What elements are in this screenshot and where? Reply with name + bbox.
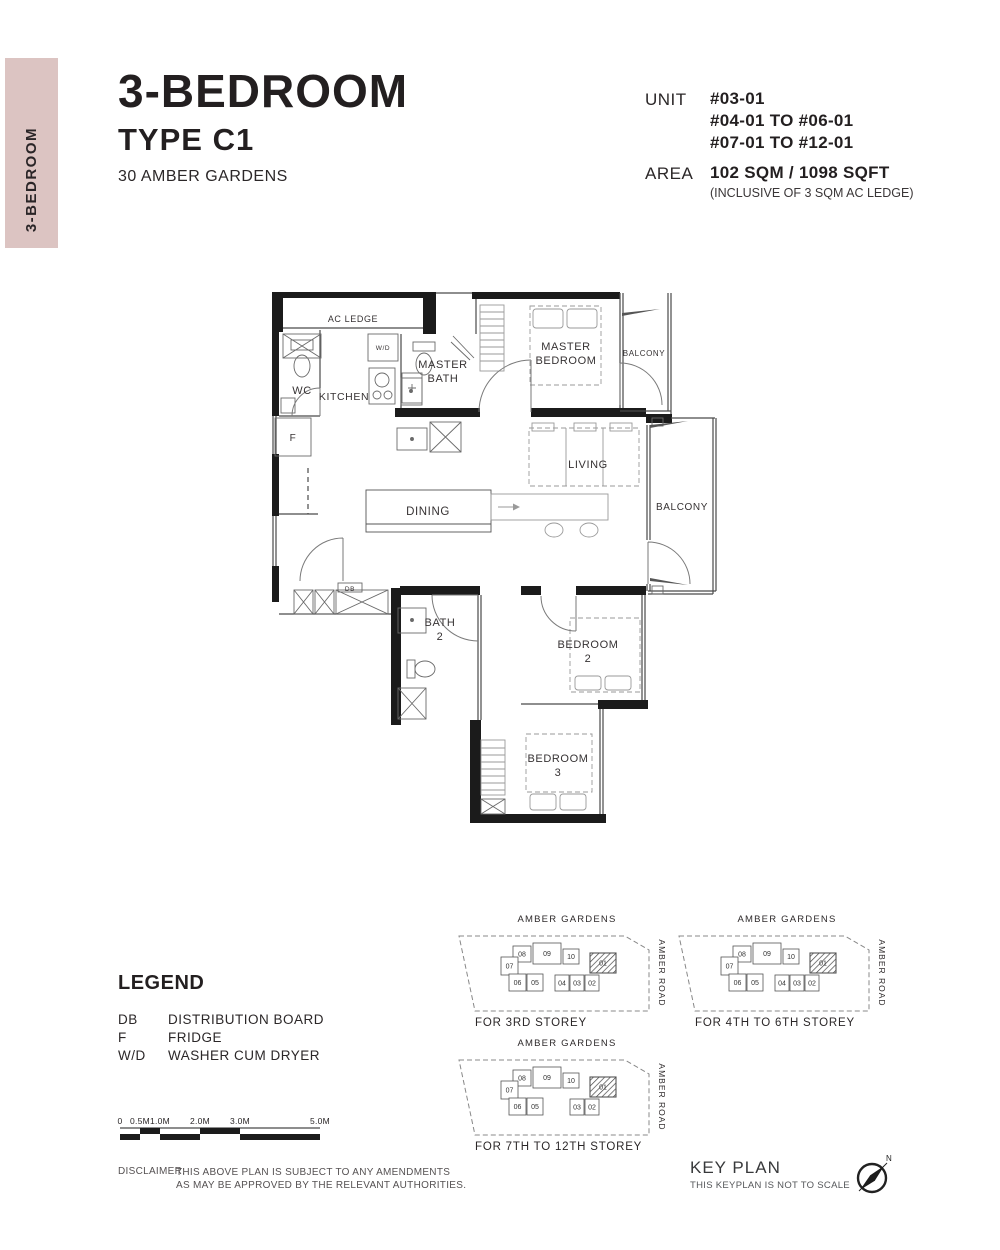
unit-values: #03-01#04-01 TO #06-01#07-01 TO #12-01: [710, 88, 853, 154]
unit-number-04: 04: [778, 981, 786, 988]
key-plan-caption: FOR 7TH TO 12TH STOREY: [475, 1141, 642, 1153]
key-plan-2: AMBER GARDENSAMBER ROAD08091007010605040…: [675, 910, 905, 1040]
legend-abbr: DB: [118, 1012, 168, 1027]
room-label-bath-2: BATH2: [425, 617, 456, 643]
legend-item-f: FFRIDGE: [118, 1030, 324, 1045]
room-label-balcony-top: BALCONY: [623, 349, 665, 358]
scale-segment: [140, 1128, 160, 1134]
legend-desc: FRIDGE: [168, 1030, 222, 1045]
scale-label: 2.0M: [190, 1116, 210, 1126]
unit-value: #07-01 TO #12-01: [710, 132, 853, 154]
unit-number-07: 07: [726, 964, 734, 971]
page-title: 3-BEDROOM: [118, 64, 408, 118]
unit-label: UNIT: [645, 90, 687, 110]
area-value: 102 SQM / 1098 SQFT: [710, 162, 890, 184]
unit-number-05: 05: [751, 980, 759, 987]
scale-bar: 00.5M1.0M2.0M3.0M5.0M: [110, 1116, 340, 1146]
area-note: (INCLUSIVE OF 3 SQM AC LEDGE): [710, 186, 914, 200]
room-label-bedroom-2: BEDROOM2: [557, 639, 618, 665]
key-plan-title: KEY PLAN: [690, 1158, 781, 1178]
unit-number-07: 07: [506, 1088, 514, 1095]
scale-segment: [160, 1134, 200, 1140]
unit-number-10: 10: [787, 954, 795, 961]
sidebar-tab-label: 3-BEDROOM: [23, 127, 40, 232]
unit-number-09: 09: [543, 1075, 551, 1082]
room-label-washer-dryer: W/D: [376, 345, 390, 352]
room-label-dining: DINING: [406, 506, 450, 518]
street-label-right: AMBER ROAD: [877, 939, 887, 1006]
scale-label: 5.0M: [310, 1116, 330, 1126]
street-label-top: AMBER GARDENS: [517, 914, 616, 925]
unit-number-02: 02: [588, 1105, 596, 1112]
room-label-balcony-right: BALCONY: [656, 502, 708, 513]
floorplan-page: 3-BEDROOM 3-BEDROOM TYPE C1 30 AMBER GAR…: [0, 0, 1000, 1250]
scale-label: 1.0M: [150, 1116, 170, 1126]
legend-title: LEGEND: [118, 972, 204, 995]
key-plan-1: AMBER GARDENSAMBER ROAD08091007010605040…: [455, 910, 685, 1040]
scale-label: 0.5M: [130, 1116, 150, 1126]
unit-number-06: 06: [734, 980, 742, 987]
unit-number-05: 05: [531, 1104, 539, 1111]
scale-segment: [200, 1128, 240, 1134]
unit-number-03: 03: [573, 981, 581, 988]
unit-number-01: 01: [819, 961, 827, 968]
unit-number-09: 09: [543, 951, 551, 958]
street-label-top: AMBER GARDENS: [517, 1038, 616, 1049]
room-label-living: LIVING: [568, 459, 608, 471]
unit-number-04: 04: [558, 981, 566, 988]
room-label-fridge: F: [290, 433, 297, 444]
legend-desc: WASHER CUM DRYER: [168, 1048, 320, 1063]
page-subtitle: TYPE C1: [118, 122, 254, 158]
sidebar-tab-3-bedroom: 3-BEDROOM: [5, 58, 58, 248]
room-label-ac-ledge: AC LEDGE: [328, 314, 378, 324]
scale-segment: [240, 1134, 320, 1140]
disclaimer-line-2: AS MAY BE APPROVED BY THE RELEVANT AUTHO…: [176, 1179, 466, 1192]
compass-north-label: N: [886, 1154, 892, 1163]
scale-segment: [120, 1134, 140, 1140]
fixtures: [275, 309, 688, 814]
unit-number-09: 09: [763, 951, 771, 958]
room-label-wc: WC: [292, 385, 312, 397]
room-label-master-bath: MASTERBATH: [418, 359, 467, 385]
legend-abbr: W/D: [118, 1048, 168, 1063]
unit-number-02: 02: [808, 981, 816, 988]
key-plan-3: AMBER GARDENSAMBER ROAD08091007010605030…: [455, 1034, 685, 1164]
unit-number-06: 06: [514, 980, 522, 987]
legend-item-db: DBDISTRIBUTION BOARD: [118, 1012, 324, 1027]
unit-number-01: 01: [599, 961, 607, 968]
floorplan-labels: AC LEDGEWCKITCHENW/DMASTERBATHMASTERBEDR…: [290, 314, 708, 779]
legend-item-wd: W/DWASHER CUM DRYER: [118, 1048, 324, 1063]
unit-number-03: 03: [793, 981, 801, 988]
unit-number-10: 10: [567, 1078, 575, 1085]
unit-number-01: 01: [599, 1085, 607, 1092]
scale-label: 3.0M: [230, 1116, 250, 1126]
unit-number-08: 08: [518, 1076, 526, 1083]
legend-rows: DBDISTRIBUTION BOARDFFRIDGEW/DWASHER CUM…: [118, 1012, 324, 1066]
unit-number-08: 08: [738, 952, 746, 959]
unit-number-10: 10: [567, 954, 575, 961]
floor-plan: AC LEDGEWCKITCHENW/DMASTERBATHMASTERBEDR…: [258, 278, 738, 838]
street-label-right: AMBER ROAD: [657, 939, 667, 1006]
legend-abbr: F: [118, 1030, 168, 1045]
unit-number-08: 08: [518, 952, 526, 959]
project-address: 30 AMBER GARDENS: [118, 168, 288, 186]
unit-number-03: 03: [573, 1105, 581, 1112]
legend-desc: DISTRIBUTION BOARD: [168, 1012, 324, 1027]
walls: [272, 292, 672, 823]
key-plan-caption: FOR 3RD STOREY: [475, 1017, 587, 1029]
unit-value: #03-01: [710, 88, 853, 110]
furniture: [366, 305, 640, 810]
unit-number-02: 02: [588, 981, 596, 988]
street-label-top: AMBER GARDENS: [737, 914, 836, 925]
key-plan-caption: FOR 4TH TO 6TH STOREY: [695, 1017, 855, 1029]
unit-value: #04-01 TO #06-01: [710, 110, 853, 132]
room-label-kitchen: KITCHEN: [319, 391, 369, 403]
unit-number-05: 05: [531, 980, 539, 987]
unit-number-06: 06: [514, 1104, 522, 1111]
key-plan-note: THIS KEYPLAN IS NOT TO SCALE: [690, 1180, 850, 1191]
room-label-db: DB: [345, 586, 355, 593]
disclaimer-text: THIS ABOVE PLAN IS SUBJECT TO ANY AMENDM…: [176, 1166, 466, 1192]
compass-icon: N: [850, 1150, 900, 1200]
scale-label: 0: [117, 1116, 122, 1126]
room-label-bedroom-3: BEDROOM3: [527, 753, 588, 779]
unit-number-07: 07: [506, 964, 514, 971]
street-label-right: AMBER ROAD: [657, 1063, 667, 1130]
room-label-master-bedroom: MASTERBEDROOM: [535, 341, 596, 367]
disclaimer-line-1: THIS ABOVE PLAN IS SUBJECT TO ANY AMENDM…: [176, 1166, 466, 1179]
area-label: AREA: [645, 164, 693, 184]
